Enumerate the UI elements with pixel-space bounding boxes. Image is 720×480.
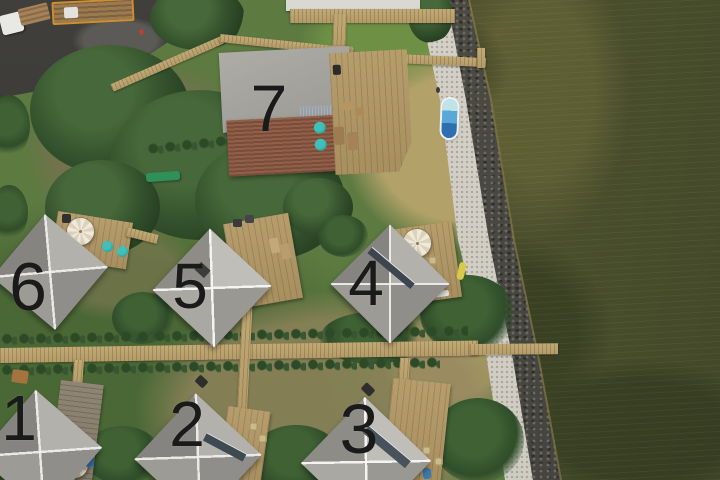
deck-chair-dark	[245, 215, 254, 223]
house-number-label-2: 2	[169, 392, 205, 456]
blue-kayak	[423, 468, 431, 479]
truck-bed-lumber	[17, 2, 50, 26]
house-number-label-7: 7	[251, 75, 288, 141]
bush	[0, 95, 30, 157]
person-red-jacket	[139, 29, 144, 35]
shore-pier	[470, 343, 558, 355]
deck-chair-dark	[233, 219, 242, 227]
bush	[0, 185, 28, 240]
top-building-deck	[290, 9, 455, 23]
aerial-photo: 7 6 5 4 1 2	[0, 0, 720, 480]
paddleboard	[441, 99, 457, 138]
picnic-table	[347, 132, 358, 150]
wicker-chair	[249, 422, 258, 431]
house-number-label-1: 1	[1, 386, 37, 450]
roof-vent	[194, 374, 208, 388]
grill	[333, 65, 342, 75]
picnic-table	[334, 127, 345, 145]
house-number-label-4: 4	[348, 251, 384, 315]
dock-end-tee	[477, 48, 485, 68]
house-number-label-6: 6	[9, 253, 47, 321]
deck-chair	[343, 102, 352, 110]
deck-chair	[355, 107, 364, 115]
person-on-beach	[436, 87, 440, 93]
wicker-chair	[258, 434, 267, 443]
teal-chair	[117, 246, 128, 257]
utility-trailer	[51, 0, 134, 25]
house-7-deck	[329, 49, 413, 175]
house-7-group	[211, 37, 418, 187]
teal-chair	[102, 241, 113, 252]
wicker-chair	[434, 457, 443, 466]
house-number-label-5: 5	[172, 254, 208, 318]
trailer-cab	[64, 7, 79, 19]
house-number-label-3: 3	[340, 394, 379, 464]
